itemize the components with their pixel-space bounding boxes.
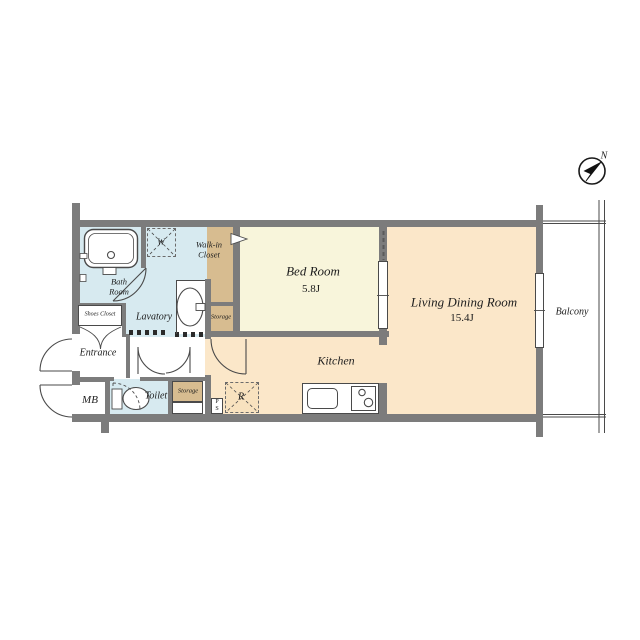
living-dining-room-label: Living Dining Room [411,296,517,311]
floor-plan: Bed Room 5.8J Living Dining Room 15.4J K… [0,0,640,640]
bed-room-size: 5.8J [302,283,320,295]
kitchen-label: Kitchen [317,354,354,367]
bed-room-label: Bed Room [286,265,340,280]
compass-icon [579,158,605,184]
pipe-space-label: P S [215,399,218,413]
balcony-label: Balcony [556,306,589,317]
storage-upper-label: Storage [211,313,231,320]
walk-in-closet-label: Walk-in Closet [196,240,222,259]
kitchen-door-arc [211,339,246,374]
hall-double-door-arcs [138,347,190,374]
north-label: N [601,150,608,161]
stove-burners-icon [359,389,373,406]
wash-basin-icon [177,288,205,326]
mb-door-arc [40,385,72,417]
lavatory-label: Lavatory [136,311,172,322]
shoes-closet-door-arcs [80,327,121,349]
door-leaf-icon [231,234,247,245]
entrance-label: Entrance [80,347,117,358]
toilet-label: Toilet [145,390,167,401]
washer-label: W [157,237,165,247]
plan-linework [0,0,640,640]
toilet-fixture-icon [112,383,149,410]
living-dining-room-size: 15.4J [450,312,474,324]
bath-room-label: Bath Room [109,277,129,296]
storage-lower-label: Storage [178,387,198,394]
bathtub-icon [80,230,138,282]
entrance-door-arc [40,339,72,371]
mb-label: MB [82,394,98,406]
shoes-closet-label: Shoes Closet [85,312,116,319]
refrigerator-label: R [238,391,244,402]
